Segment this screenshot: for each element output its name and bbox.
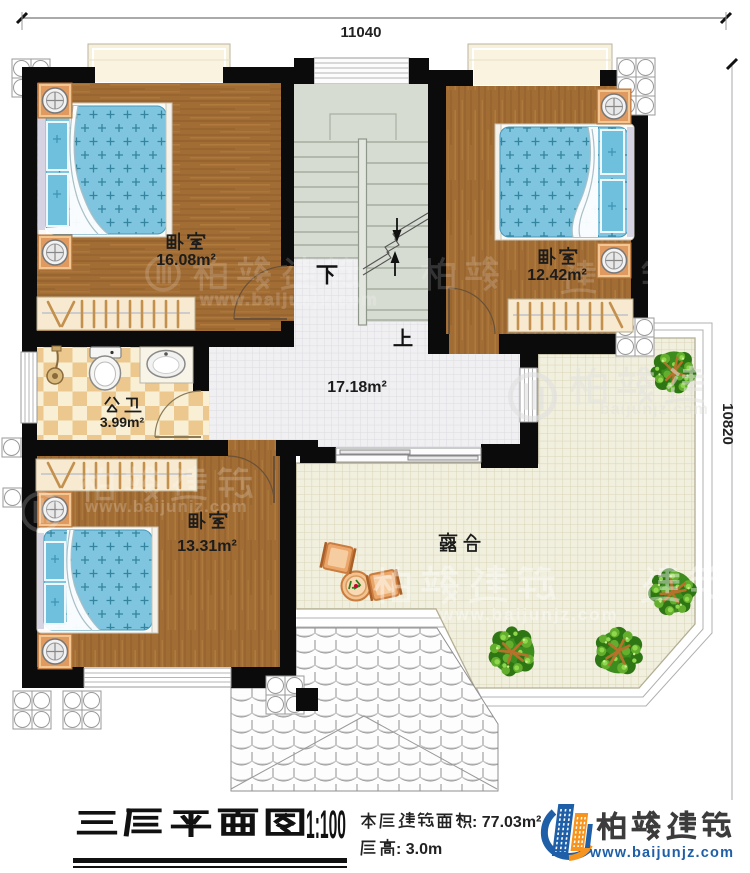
svg-text:13.31m²: 13.31m² [177,538,237,555]
svg-text:www.baijunjz.com: www.baijunjz.com [589,845,734,861]
svg-text:16.08m²: 16.08m² [156,252,216,269]
svg-text:www.baijunjz.com: www.baijunjz.com [439,605,619,624]
svg-text:: 77.03m²: : 77.03m² [472,814,541,831]
svg-text:www.baijunjz.com: www.baijunjz.com [199,290,379,309]
svg-text:www.baijunjz.com: www.baijunjz.com [84,497,248,516]
svg-text:12.42m²: 12.42m² [527,267,587,284]
svg-text:11040: 11040 [341,24,382,41]
svg-text:3.99m²: 3.99m² [100,414,145,430]
svg-text:baijunjz.com: baijunjz.com [600,401,709,418]
svg-text:1:100: 1:100 [306,803,346,847]
svg-text:17.18m²: 17.18m² [327,379,387,396]
svg-text:10820: 10820 [719,403,736,445]
svg-text:: 3.0m: : 3.0m [396,841,442,858]
